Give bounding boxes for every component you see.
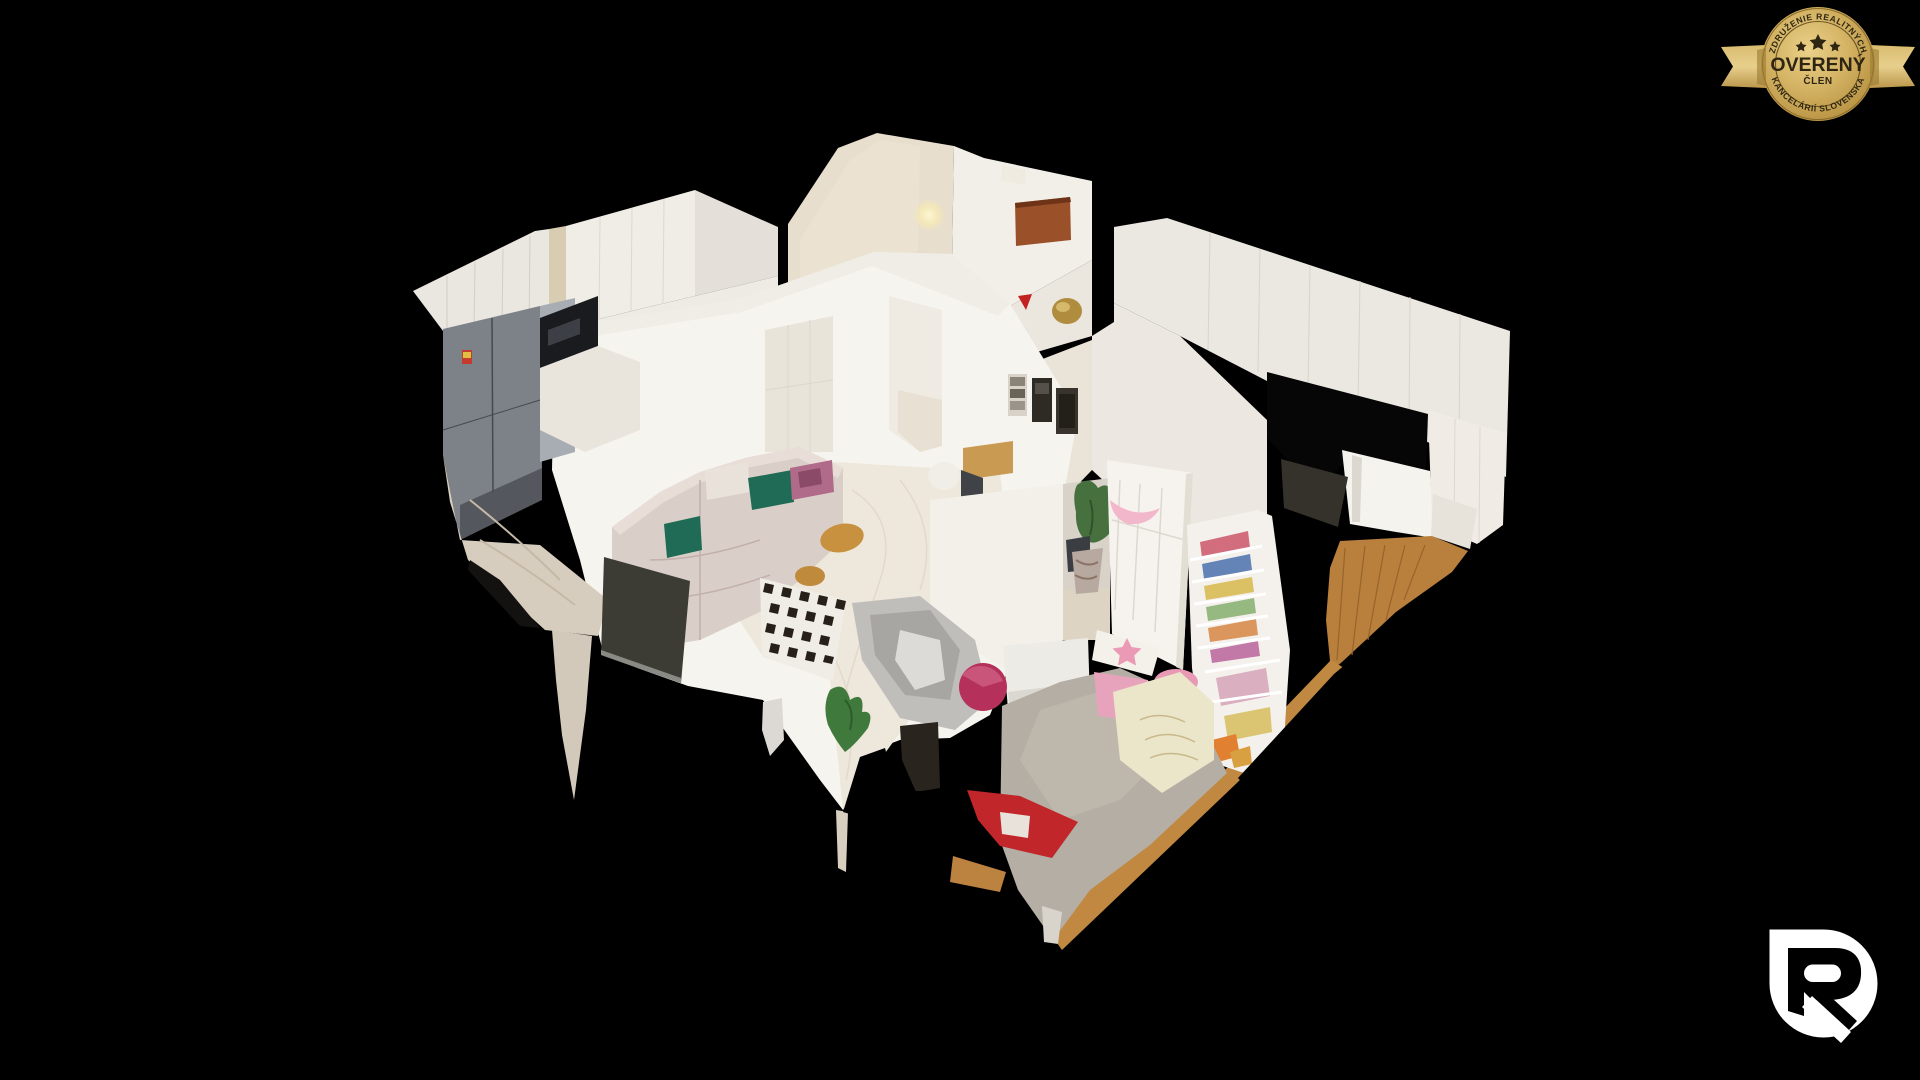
svg-text:ČLEN: ČLEN: [1803, 74, 1832, 87]
svg-text:OVERENÝ: OVERENÝ: [1770, 52, 1865, 76]
